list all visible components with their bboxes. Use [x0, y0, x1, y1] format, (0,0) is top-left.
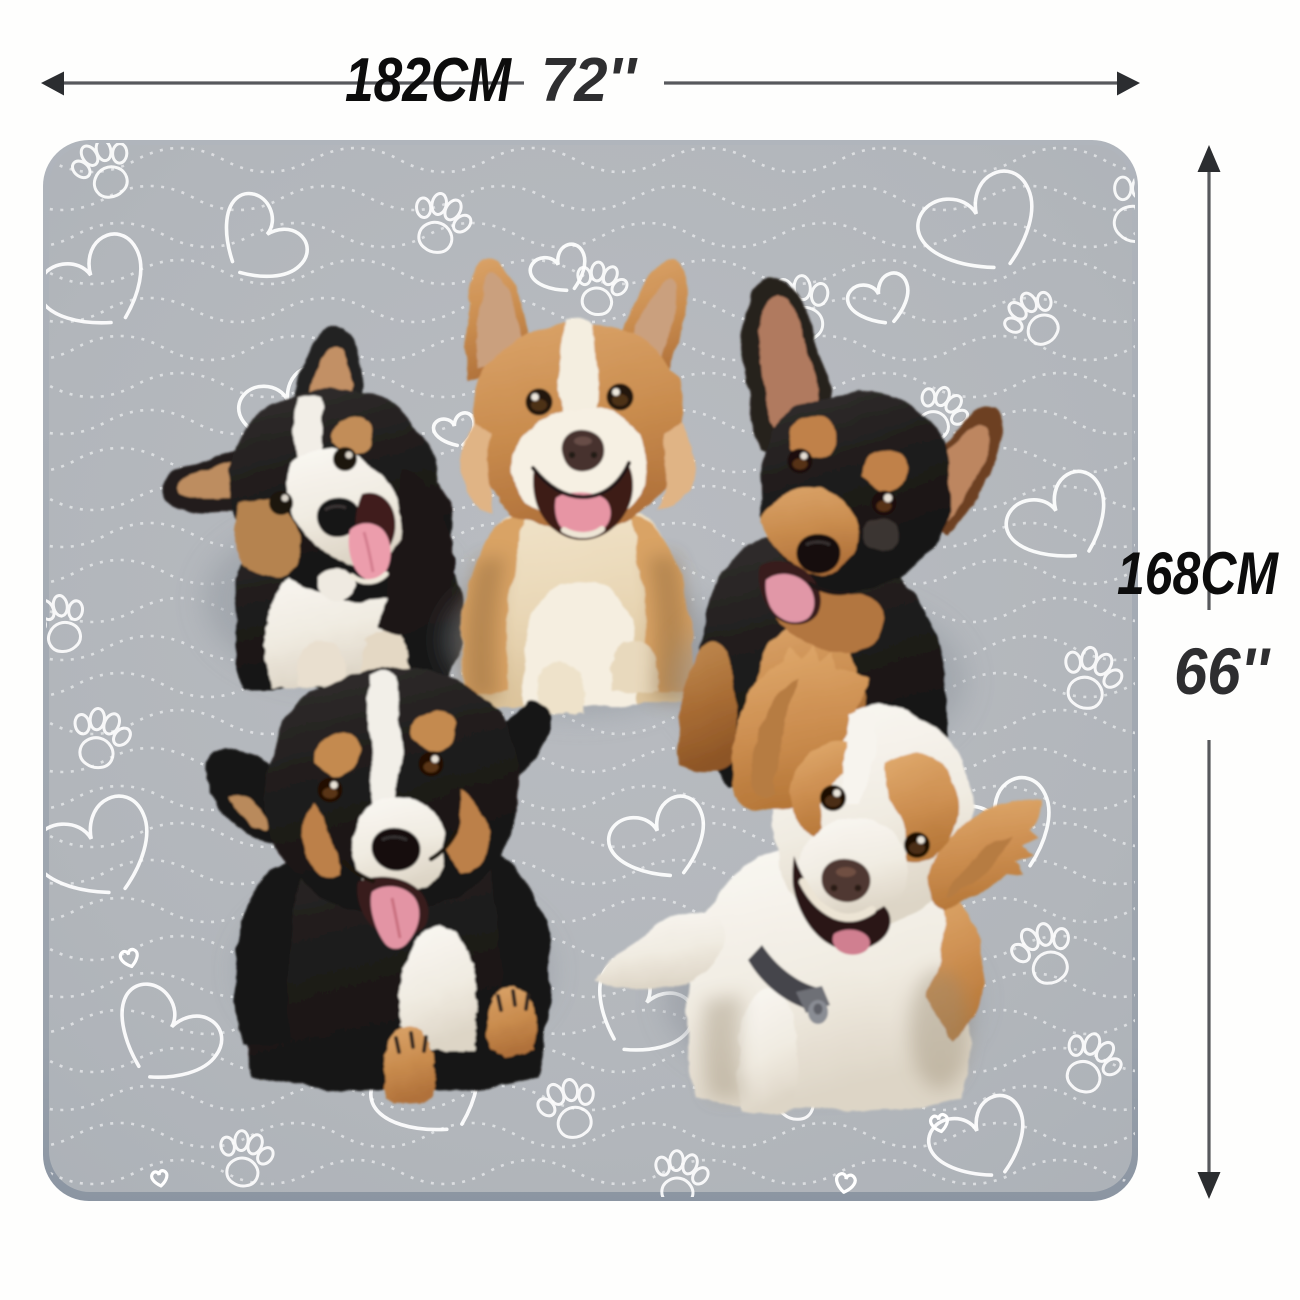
svg-text:168CM: 168CM	[1117, 540, 1280, 607]
svg-text:66'': 66''	[1174, 634, 1271, 708]
svg-text:72'': 72''	[541, 46, 638, 115]
svg-text:182CM: 182CM	[345, 46, 512, 115]
